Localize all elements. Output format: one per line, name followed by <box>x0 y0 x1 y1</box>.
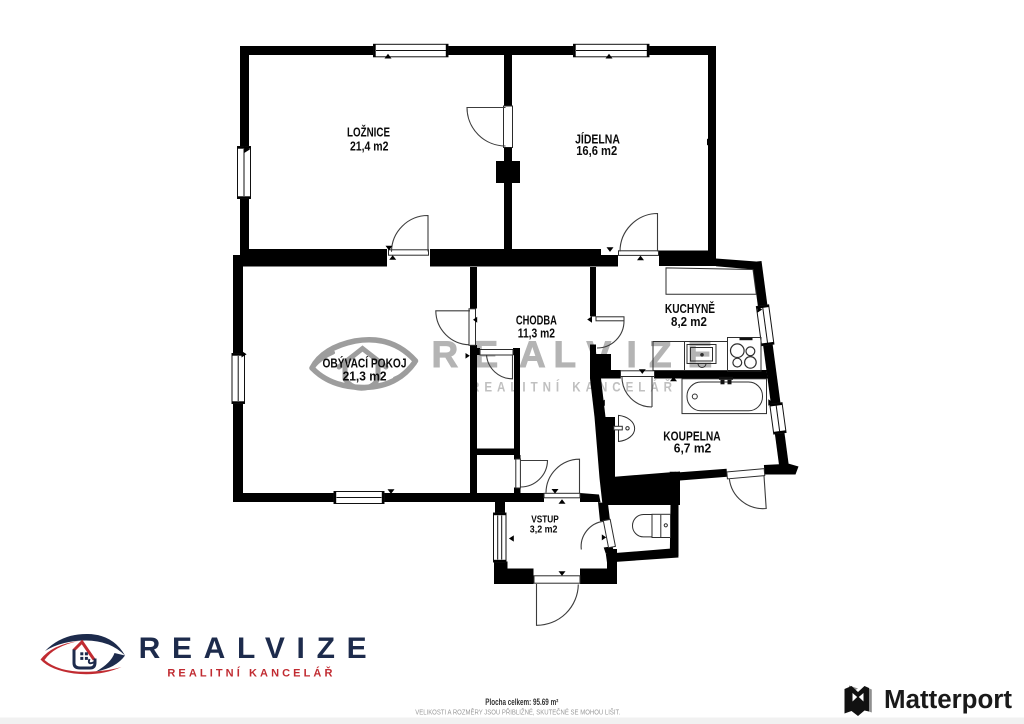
svg-text:Matterport: Matterport <box>884 686 1013 714</box>
svg-text:21,4 m2: 21,4 m2 <box>350 138 389 153</box>
svg-text:Plocha celkem: 95.69 m²: Plocha celkem: 95.69 m² <box>485 697 558 707</box>
svg-text:LOŽNICE: LOŽNICE <box>347 124 390 139</box>
svg-text:3,2 m2: 3,2 m2 <box>530 523 558 535</box>
svg-text:R: R <box>432 334 459 375</box>
svg-text:16,6 m2: 16,6 m2 <box>576 143 617 158</box>
svg-text:8,2 m2: 8,2 m2 <box>671 314 707 329</box>
svg-text:VELIKOSTI A ROZMĚRY JSOU PŘIBL: VELIKOSTI A ROZMĚRY JSOU PŘIBLIŽNÉ, SKUT… <box>415 707 620 716</box>
svg-text:11,3 m2: 11,3 m2 <box>518 325 555 340</box>
svg-text:L: L <box>554 334 577 375</box>
svg-text:REALITNÍ KANCELÁŘ: REALITNÍ KANCELÁŘ <box>167 667 332 680</box>
svg-text:REALITNÍ KANCELÁŘ: REALITNÍ KANCELÁŘ <box>471 378 677 395</box>
svg-text:I: I <box>627 334 637 375</box>
svg-text:Z: Z <box>649 334 672 375</box>
svg-text:E: E <box>688 334 713 375</box>
svg-text:21,3 m2: 21,3 m2 <box>343 368 387 383</box>
svg-text:REALVIZE: REALVIZE <box>139 632 367 665</box>
svg-text:6,7 m2: 6,7 m2 <box>674 441 712 456</box>
